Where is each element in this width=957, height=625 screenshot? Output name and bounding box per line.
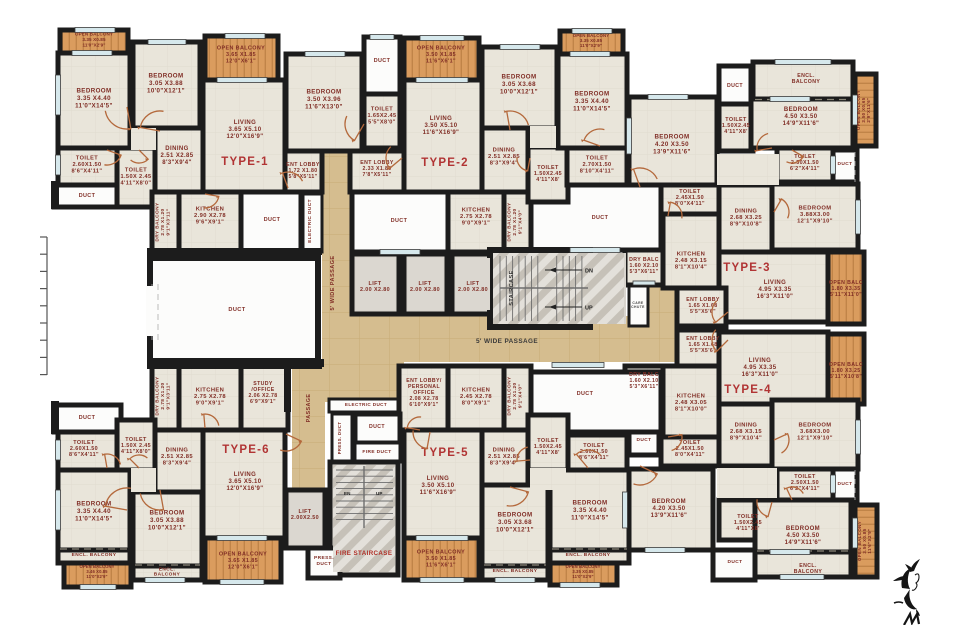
svg-text:BEDROOM3.50 X3.9611'6"X13'0": BEDROOM3.50 X3.9611'6"X13'0" <box>305 89 343 111</box>
svg-text:BEDROOM4.20 X3.5013'9"X11'6": BEDROOM4.20 X3.5013'9"X11'6" <box>653 134 691 156</box>
svg-text:TOILET1.50X2.454'11"X8': TOILET1.50X2.454'11"X8' <box>734 514 762 532</box>
svg-text:DUCT: DUCT <box>369 424 385 430</box>
svg-text:BEDROOM3.35 X4.4011'0"X14'5": BEDROOM3.35 X4.4011'0"X14'5" <box>571 500 609 522</box>
svg-text:ENCL. BALCONY: ENCL. BALCONY <box>566 552 611 558</box>
svg-text:5' WIDE PASSAGE: 5' WIDE PASSAGE <box>330 255 336 310</box>
svg-text:TOILET1.50X 2.454'11"X8'0": TOILET1.50X 2.454'11"X8'0" <box>120 168 151 187</box>
svg-text:BEDROOM3.05 X3.8810'0"X12'1": BEDROOM3.05 X3.8810'0"X12'1" <box>147 73 185 95</box>
svg-text:TOILET2.45X1.508'0"X4'11": TOILET2.45X1.508'0"X4'11" <box>675 189 705 207</box>
svg-text:ELECTRIC DUCT: ELECTRIC DUCT <box>307 199 313 243</box>
svg-text:BEDROOM3.88X3.0012'1"X9'10": BEDROOM3.88X3.0012'1"X9'10" <box>797 205 833 224</box>
svg-text:TYPE-1: TYPE-1 <box>221 156 268 168</box>
svg-text:KITCHEN2.75 X2.789'0"X9'1": KITCHEN2.75 X2.789'0"X9'1" <box>460 207 492 226</box>
svg-text:DUCT: DUCT <box>727 83 743 89</box>
svg-text:5' WIDE PASSAGE: 5' WIDE PASSAGE <box>476 338 538 345</box>
svg-text:ENCL. BALCONY: ENCL. BALCONY <box>493 568 538 574</box>
svg-text:TOILET2.60X1.508'6"X4'11": TOILET2.60X1.508'6"X4'11" <box>579 443 609 461</box>
svg-text:UP: UP <box>585 306 593 312</box>
svg-text:STAIRCASE: STAIRCASE <box>509 270 515 306</box>
svg-text:DUCT: DUCT <box>228 307 245 313</box>
svg-text:TYPE-5: TYPE-5 <box>421 447 468 459</box>
svg-text:TOILET1.65X2.455'5"X8'0": TOILET1.65X2.455'5"X8'0" <box>367 107 396 126</box>
svg-text:TYPE-2: TYPE-2 <box>421 157 468 169</box>
svg-text:PASSAGE: PASSAGE <box>306 394 312 423</box>
svg-text:DUCT: DUCT <box>838 161 853 167</box>
svg-text:KITCHEN2.90 X2.789'6"X9'1": KITCHEN2.90 X2.789'6"X9'1" <box>194 206 226 225</box>
svg-text:BEDROOM3.35 X4.4011'0"X14'5": BEDROOM3.35 X4.4011'0"X14'5" <box>75 88 113 110</box>
svg-text:ENT LOBBY1.72 X1.805'8"X5'11": ENT LOBBY1.72 X1.805'8"X5'11" <box>286 162 320 180</box>
svg-text:TYPE-6: TYPE-6 <box>222 444 269 456</box>
svg-text:ENT LOBBY1.65 X1.685'5"X5'6": ENT LOBBY1.65 X1.685'5"X5'6" <box>686 297 720 315</box>
svg-text:DUCT: DUCT <box>637 437 652 443</box>
svg-text:DUCT: DUCT <box>264 217 281 223</box>
svg-text:TOILET2.45X1.508'0"X4'11": TOILET2.45X1.508'0"X4'11" <box>675 440 705 458</box>
svg-text:ELECTRIC DUCT: ELECTRIC DUCT <box>345 402 387 407</box>
svg-text:BEDROOM3.05 X3.6810'0"X12'1": BEDROOM3.05 X3.6810'0"X12'1" <box>496 512 534 534</box>
svg-text:BEDROOM4.20 X3.5013'9"X11'6": BEDROOM4.20 X3.5013'9"X11'6" <box>651 499 688 519</box>
svg-text:TYPE-4: TYPE-4 <box>724 384 771 396</box>
svg-text:PRESS.DUCT: PRESS.DUCT <box>314 555 334 567</box>
svg-text:KITCHEN2.75 X2.789'0"X9'1": KITCHEN2.75 X2.789'0"X9'1" <box>194 387 226 406</box>
svg-text:TOILET2.50X1.506'2"X4'11": TOILET2.50X1.506'2"X4'11" <box>790 474 820 492</box>
svg-text:OPEN BALC1.80 X3.255'11"X10'8": OPEN BALC1.80 X3.255'11"X10'8" <box>829 362 863 380</box>
svg-text:TOILET1.50X2.454'11"X8': TOILET1.50X2.454'11"X8' <box>534 165 562 183</box>
svg-text:FIRE STAIRCASE: FIRE STAIRCASE <box>336 550 393 557</box>
svg-text:DN: DN <box>585 269 593 275</box>
svg-text:BEDROOM3.05 X3.6810'0"X12'1": BEDROOM3.05 X3.6810'0"X12'1" <box>500 74 538 96</box>
svg-text:BEDROOM4.50 X3.5014'9"X11'6": BEDROOM4.50 X3.5014'9"X11'6" <box>783 107 820 127</box>
svg-text:BEDROOM3.35 X4.4011'0"X14'5": BEDROOM3.35 X4.4011'0"X14'5" <box>75 501 113 523</box>
svg-text:BEDROOM4.50 X3.5014'9"X11'6": BEDROOM4.50 X3.5014'9"X11'6" <box>785 526 822 546</box>
svg-text:TOILET2.60X1.508'6"X4'11": TOILET2.60X1.508'6"X4'11" <box>69 440 99 458</box>
svg-text:DUCT: DUCT <box>391 218 408 224</box>
svg-text:DUCT: DUCT <box>838 481 853 487</box>
svg-text:UP: UP <box>376 491 382 496</box>
svg-text:DUCT: DUCT <box>79 193 96 199</box>
svg-text:DUCT: DUCT <box>374 58 391 64</box>
svg-text:DRY BALC1.60 X2.105'3"X6'11": DRY BALC1.60 X2.105'3"X6'11" <box>629 257 659 275</box>
svg-text:DUCT: DUCT <box>728 559 743 565</box>
svg-text:DUCT: DUCT <box>79 415 96 421</box>
svg-text:TOILET1.50X2.454'11"X8': TOILET1.50X2.454'11"X8' <box>534 438 562 456</box>
svg-text:ENCL. BALCONY: ENCL. BALCONY <box>72 552 117 558</box>
svg-text:TOILET1.50X2.454'11"X8': TOILET1.50X2.454'11"X8' <box>722 117 750 135</box>
svg-text:TYPE-3: TYPE-3 <box>723 262 770 274</box>
svg-text:KITCHEN2.48 X3.158'1"X10'4": KITCHEN2.48 X3.158'1"X10'4" <box>675 251 708 270</box>
svg-text:OPEN BALC1.80 X3.355'11"X11'0": OPEN BALC1.80 X3.355'11"X11'0" <box>829 280 863 298</box>
svg-text:FIRE DUCT: FIRE DUCT <box>362 449 391 455</box>
svg-text:DUCT: DUCT <box>577 391 594 397</box>
svg-text:PRESS. DUCT: PRESS. DUCT <box>337 422 342 455</box>
svg-text:DUCT: DUCT <box>592 215 609 221</box>
svg-text:TOILET1.50X 2.454'11"X8'0": TOILET1.50X 2.454'11"X8'0" <box>121 437 151 455</box>
svg-text:BEDROOM3.68X3.0012'1"X9'10": BEDROOM3.68X3.0012'1"X9'10" <box>797 422 833 441</box>
svg-text:TOILET2.60X1.508'6"X4'11": TOILET2.60X1.508'6"X4'11" <box>72 156 103 175</box>
svg-text:BEDROOM3.35 X4.4011'0"X14'5": BEDROOM3.35 X4.4011'0"X14'5" <box>573 91 611 113</box>
svg-text:BEDROOM3.05 X3.8810'0"X12'1": BEDROOM3.05 X3.8810'0"X12'1" <box>148 510 186 532</box>
svg-text:EN: EN <box>344 491 351 496</box>
svg-text:KITCHEN2.48 X3.058'1"X10'0": KITCHEN2.48 X3.058'1"X10'0" <box>675 393 708 412</box>
svg-text:KITCHEN2.45 X2.788'0"X9'1": KITCHEN2.45 X2.788'0"X9'1" <box>460 387 492 406</box>
svg-text:DRY BALC1.60 X2.105'3"X6'11": DRY BALC1.60 X2.105'3"X6'11" <box>629 372 659 390</box>
svg-text:CARECHUTE: CARECHUTE <box>631 301 645 309</box>
